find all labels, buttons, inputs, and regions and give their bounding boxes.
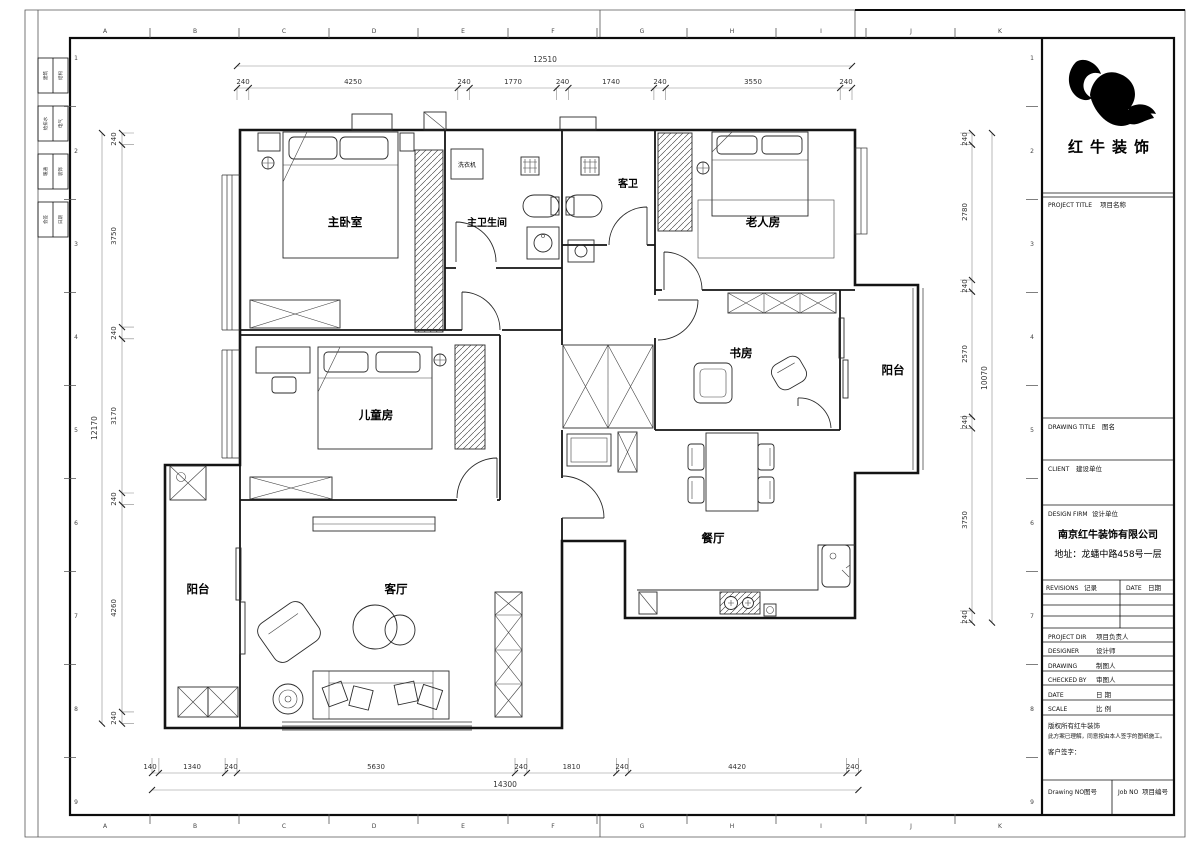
- grid-number: 2: [74, 148, 78, 155]
- dim-label: 240: [846, 763, 859, 771]
- grid-letter: J: [909, 28, 912, 35]
- grid-number: 3: [1030, 241, 1034, 248]
- project-title-label-en: PROJECT TITLE: [1048, 202, 1092, 209]
- dim-overall-left: 12170: [90, 416, 99, 440]
- grid-letter: I: [820, 28, 822, 35]
- dim-label: 2780: [961, 203, 969, 221]
- grid-letter: A: [103, 823, 108, 830]
- grid-number: 7: [74, 613, 78, 620]
- dim-label: 240: [457, 78, 470, 86]
- rug: [698, 200, 834, 258]
- room-label-washing-machine: 洗衣机: [458, 161, 476, 169]
- wardrobe: [415, 150, 443, 332]
- desk: [256, 347, 310, 373]
- dim-label: 240: [839, 78, 852, 86]
- hallway-cabinets: [563, 345, 653, 472]
- room-label-guest-bathroom: 客卫: [617, 177, 638, 190]
- date-label-en: DATE: [1048, 692, 1064, 699]
- room-label-kids-room: 儿童房: [358, 408, 394, 422]
- grid-letter: F: [551, 823, 555, 830]
- grid-letter: C: [282, 28, 286, 35]
- furniture-kids-room: [250, 345, 485, 499]
- walls: [165, 130, 918, 728]
- checked-by-label-en: CHECKED BY: [1048, 677, 1087, 684]
- dining-table: [706, 433, 758, 511]
- checked-by-label-cn: 审图人: [1096, 675, 1116, 684]
- dim-label: 3170: [110, 407, 118, 425]
- project-title-label-cn: 项目名称: [1100, 200, 1127, 209]
- signoff-cell: 给排水: [42, 116, 49, 130]
- room-label-living-room: 客厅: [384, 582, 408, 596]
- client-signature-label: 客户签字：: [1048, 747, 1081, 756]
- client-label-cn: 建设单位: [1076, 464, 1103, 473]
- desk-chair: [768, 353, 810, 393]
- sofa: [313, 671, 449, 719]
- job-no-label-en: Job NO: [1117, 789, 1139, 796]
- agreement-note: 此方案已理解，同意按由本人签字的图纸施工。: [1048, 732, 1165, 740]
- grid-letter: C: [282, 823, 286, 830]
- grid-letter: A: [103, 28, 108, 35]
- designer-label-cn: 设计师: [1096, 646, 1116, 655]
- designer-label-en: DESIGNER: [1048, 648, 1079, 655]
- dim-label: 3750: [110, 227, 118, 245]
- dim-label: 3550: [744, 78, 762, 86]
- date-label-cn: 日 期: [1096, 691, 1112, 699]
- grid-number: 8: [74, 706, 78, 713]
- company-address: 地址：龙蟠中路458号一层: [1054, 548, 1161, 560]
- dim-label: 3750: [961, 511, 969, 529]
- drawing-no-label-cn: 图号: [1084, 788, 1098, 796]
- grid-number: 2: [1030, 148, 1034, 155]
- dim-label: 240: [110, 711, 118, 724]
- grid-number: 4: [74, 334, 78, 341]
- drawing-sheet: 建筑 结构 给排水 电气 暖通 装饰 会签 日期 A B C D E F G H…: [0, 0, 1200, 844]
- grid-letter: K: [998, 28, 1003, 35]
- dim-label: 2570: [961, 345, 969, 363]
- sheet-frame: [25, 10, 1185, 837]
- room-label-dining-room: 餐厅: [701, 531, 725, 545]
- signoff-cell: 暖通: [42, 167, 49, 176]
- grid-number: 3: [74, 241, 78, 248]
- grid-letter: H: [730, 28, 735, 35]
- room-label-elderly-room: 老人房: [745, 215, 781, 229]
- grid-number: 4: [1030, 334, 1034, 341]
- dim-label: 240: [110, 132, 118, 145]
- chair: [758, 444, 774, 470]
- room-labels: 主卧室 主卫生间 洗衣机 客卫 老人房 书房 阳台 儿童房 餐厅 客厅 阳台: [187, 161, 905, 596]
- dimension-chain-right: 10070 240 2780 240 2570 240 3750 240: [960, 130, 995, 626]
- job-no-label-cn: 项目编号: [1142, 787, 1169, 796]
- kitchen-sink: [822, 545, 850, 587]
- grid-number: 5: [1030, 427, 1034, 434]
- copyright-note: 版权所有红牛装饰: [1048, 721, 1101, 730]
- dim-label: 240: [653, 78, 666, 86]
- rev-date-label-en: DATE: [1126, 585, 1142, 592]
- chair: [688, 444, 704, 470]
- grid-letter: E: [461, 823, 465, 830]
- toilet: [523, 195, 559, 217]
- grid-letter: D: [372, 823, 377, 830]
- cushion: [394, 681, 418, 705]
- furniture-elderly-room: [658, 132, 834, 258]
- drawing-title-label-en: DRAWING TITLE: [1048, 424, 1096, 431]
- bed: [283, 132, 398, 258]
- chair: [688, 477, 704, 503]
- room-label-master-bathroom: 主卫生间: [467, 216, 507, 229]
- project-dir-label-en: PROJECT DIR: [1048, 634, 1086, 641]
- revisions-label-cn: 记录: [1084, 584, 1098, 592]
- dim-label: 4260: [110, 599, 118, 617]
- client-label-en: CLIENT: [1048, 466, 1070, 473]
- dimension-chain-top: 12510 240 4250 240 1770 240 1740 240 355…: [234, 55, 855, 100]
- room-label-balcony-left: 阳台: [187, 582, 210, 596]
- grid-number: 6: [74, 520, 78, 527]
- dim-label: 1770: [504, 78, 522, 86]
- windows: [222, 112, 923, 730]
- scale-label-cn: 比 例: [1096, 704, 1111, 713]
- signoff-cell: 建筑: [42, 71, 49, 80]
- furniture-dining-kitchen: [637, 433, 855, 616]
- dim-label: 1810: [563, 763, 581, 771]
- grid-letter: J: [909, 823, 912, 830]
- signoff-cell: 结构: [57, 71, 64, 80]
- revisions-label-en: REVISIONS: [1046, 585, 1079, 592]
- grid-letter: K: [998, 823, 1003, 830]
- drawing-by-label-en: DRAWING: [1048, 663, 1078, 670]
- signoff-table: 建筑 结构 给排水 电气 暖通 装饰 会签 日期: [38, 58, 68, 237]
- grid-number: 1: [1030, 55, 1034, 62]
- title-block: 红牛装饰 PROJECT TITLE 项目名称 DRAWING TITLE 图名…: [1042, 60, 1174, 815]
- dim-label: 5630: [367, 763, 385, 771]
- coffee-table: [385, 615, 415, 645]
- sink: [527, 227, 559, 259]
- toilet: [566, 195, 602, 217]
- dim-overall-top: 12510: [533, 55, 557, 64]
- furniture-living-room: [170, 466, 522, 719]
- nightstand: [258, 133, 280, 151]
- signoff-cell: 日期: [58, 215, 64, 224]
- sink: [568, 240, 594, 262]
- chair: [272, 377, 296, 393]
- grid-letter: G: [640, 823, 645, 830]
- grid-letter: F: [551, 28, 555, 35]
- grid-number: 1: [74, 55, 78, 62]
- dim-overall-bottom: 14300: [493, 780, 517, 789]
- dim-label: 240: [236, 78, 249, 86]
- logo-text: 红牛装饰: [1068, 138, 1156, 156]
- dim-label: 240: [961, 415, 969, 428]
- dimension-chain-bottom: 14300 140 1340 240 5630 240 1810 240 442…: [143, 758, 861, 793]
- grid-number: 5: [74, 427, 78, 434]
- grid-letter: H: [730, 823, 735, 830]
- dimension-chain-left: 12170 240 3750 240 3170 240 4260 240: [90, 130, 134, 727]
- grid-number: 7: [1030, 613, 1034, 620]
- signoff-cell: 装饰: [57, 167, 64, 176]
- floorplan-svg: 建筑 结构 给排水 电气 暖通 装饰 会签 日期 A B C D E F G H…: [0, 0, 1200, 844]
- scale-label-en: SCALE: [1048, 706, 1067, 713]
- drawing-by-label-cn: 制图人: [1096, 661, 1116, 670]
- grid-letter: I: [820, 823, 822, 830]
- design-firm-label-cn: 设计单位: [1092, 509, 1119, 518]
- dim-label: 240: [556, 78, 569, 86]
- dim-label: 4420: [728, 763, 746, 771]
- nightstand: [400, 133, 414, 151]
- dim-label: 140: [143, 763, 156, 771]
- grid-letter: B: [193, 28, 197, 35]
- furniture-master-bedroom: [250, 132, 443, 332]
- grid-number: 6: [1030, 520, 1034, 527]
- dim-label: 240: [961, 279, 969, 292]
- company-name: 南京红牛装饰有限公司: [1058, 528, 1158, 541]
- dim-overall-right: 10070: [980, 366, 989, 390]
- grid-refs: A B C D E F G H I J K A B C D E F G H I …: [64, 28, 1038, 830]
- grid-number: 9: [74, 799, 78, 806]
- logo-mark: [1069, 60, 1156, 126]
- lounge-chair: [798, 398, 831, 428]
- grid-number: 9: [1030, 799, 1034, 806]
- design-firm-label-en: DESIGN FIRM: [1048, 511, 1088, 518]
- grid-number: 8: [1030, 706, 1034, 713]
- dim-label: 1740: [602, 78, 620, 86]
- grid-letter: B: [193, 823, 197, 830]
- dim-label: 240: [514, 763, 527, 771]
- drawing-title-label-cn: 图名: [1102, 422, 1115, 431]
- dim-label: 240: [961, 132, 969, 145]
- furniture-guest-bathroom: [566, 157, 602, 262]
- dim-label: 240: [224, 763, 237, 771]
- project-dir-label-cn: 项目负责人: [1096, 632, 1129, 641]
- wardrobe: [455, 345, 485, 449]
- shaft: [495, 592, 522, 717]
- room-label-master-bedroom: 主卧室: [328, 215, 363, 229]
- dim-label: 1340: [183, 763, 201, 771]
- dim-label: 4250: [344, 78, 362, 86]
- signoff-cell: 电气: [57, 119, 64, 128]
- cushion: [417, 684, 442, 709]
- rev-date-label-cn: 日期: [1148, 584, 1162, 592]
- room-label-balcony-right: 阳台: [882, 363, 905, 377]
- dim-label: 240: [110, 492, 118, 505]
- coffee-table: [353, 605, 397, 649]
- chair: [758, 477, 774, 503]
- cushion: [322, 681, 348, 707]
- furniture-study: [694, 293, 836, 428]
- signoff-cell: 会签: [42, 215, 49, 224]
- grid-letter: G: [640, 28, 645, 35]
- room-label-study: 书房: [730, 346, 753, 360]
- grid-letter: D: [372, 28, 377, 35]
- armchair: [254, 598, 325, 667]
- cushion: [349, 686, 373, 710]
- wardrobe: [658, 133, 692, 231]
- plant: [273, 684, 303, 714]
- dim-label: 240: [110, 326, 118, 339]
- dim-label: 240: [615, 763, 628, 771]
- bed: [318, 347, 432, 449]
- drawing-no-label-en: Drawing NO: [1048, 789, 1084, 796]
- bed: [712, 132, 808, 216]
- dim-label: 240: [961, 610, 969, 623]
- grid-letter: E: [461, 28, 465, 35]
